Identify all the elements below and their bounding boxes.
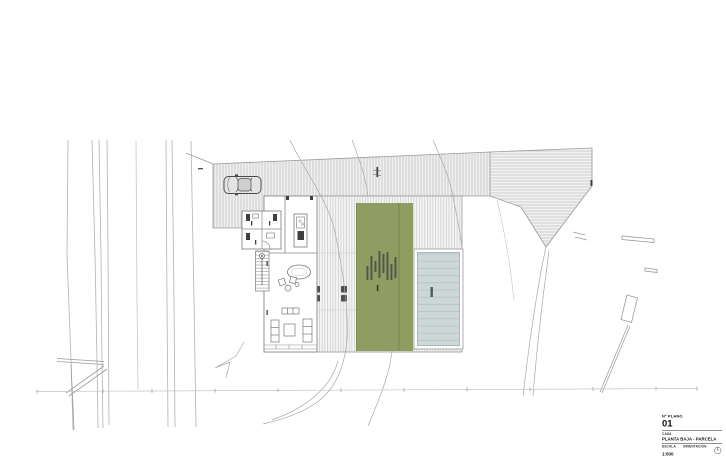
plan-number: 01: [662, 419, 722, 429]
scale-value: 1:500: [662, 452, 676, 457]
scale-label: ESCALA: [662, 445, 676, 449]
north-arrow-icon: [714, 446, 723, 455]
swimming-pool: [414, 249, 463, 349]
title-block-rule: [662, 431, 722, 432]
access-road-lines: [67, 140, 196, 430]
drawing-sheet: Nº PLANO 01 CASA PLANTA BAJA - PARCELA E…: [0, 0, 726, 470]
garden-path-elements: [600, 236, 657, 393]
garden-bed: [356, 203, 413, 351]
setback-dashed-line: [37, 387, 697, 394]
kitchen-island: [294, 214, 307, 247]
plan-title: PLANTA BAJA - PARCELA: [662, 437, 722, 442]
title-block: Nº PLANO 01 CASA PLANTA BAJA - PARCELA E…: [662, 414, 722, 457]
orientation-label: ORIENTACIÓN: [683, 445, 707, 449]
house-plan: [242, 196, 317, 352]
site-plan-drawing: [0, 0, 726, 470]
title-block-rule: [662, 443, 722, 444]
parked-car: [224, 174, 261, 195]
road-junction-lines: [57, 342, 244, 430]
pool-label-mark: [431, 287, 433, 297]
staircase: [256, 251, 270, 291]
bathroom-core: [242, 211, 281, 249]
